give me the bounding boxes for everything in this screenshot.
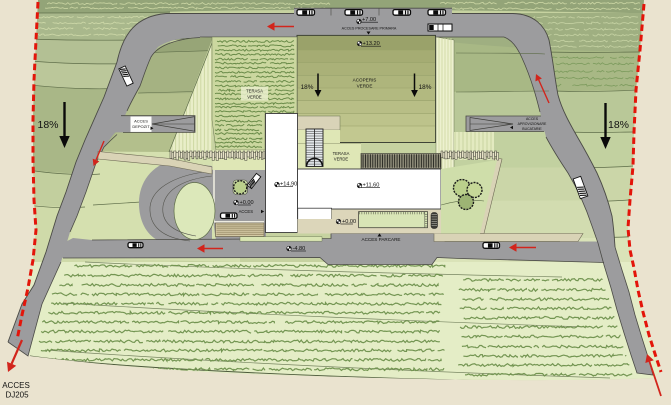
svg-text:ACCES: ACCES <box>526 117 539 121</box>
svg-text:18%: 18% <box>419 84 432 91</box>
svg-text:ACCES: ACCES <box>134 119 148 124</box>
svg-text:18%: 18% <box>608 119 629 131</box>
svg-text:ACCES: ACCES <box>2 381 30 390</box>
svg-text:APROVIZIONARE: APROVIZIONARE <box>518 122 547 126</box>
svg-text:TERASA: TERASA <box>333 151 350 156</box>
svg-text:VERDE: VERDE <box>334 156 349 161</box>
svg-text:ACCES PARCARE: ACCES PARCARE <box>362 237 401 242</box>
svg-text:ACCES: ACCES <box>239 209 254 214</box>
svg-text:BUCATARIE: BUCATARIE <box>522 127 542 131</box>
svg-text:ACCES PROCESARE PRIMARA: ACCES PROCESARE PRIMARA <box>342 27 397 31</box>
svg-text:DEPOZIT: DEPOZIT <box>132 124 150 129</box>
svg-text:ACOPERIS: ACOPERIS <box>353 78 377 83</box>
svg-text:TERASA: TERASA <box>246 89 263 94</box>
svg-text:VERDE: VERDE <box>247 95 262 100</box>
svg-text:DJ205: DJ205 <box>5 391 29 400</box>
svg-text:VERDE: VERDE <box>357 84 373 89</box>
svg-text:18%: 18% <box>37 119 58 131</box>
svg-text:18%: 18% <box>301 84 314 91</box>
